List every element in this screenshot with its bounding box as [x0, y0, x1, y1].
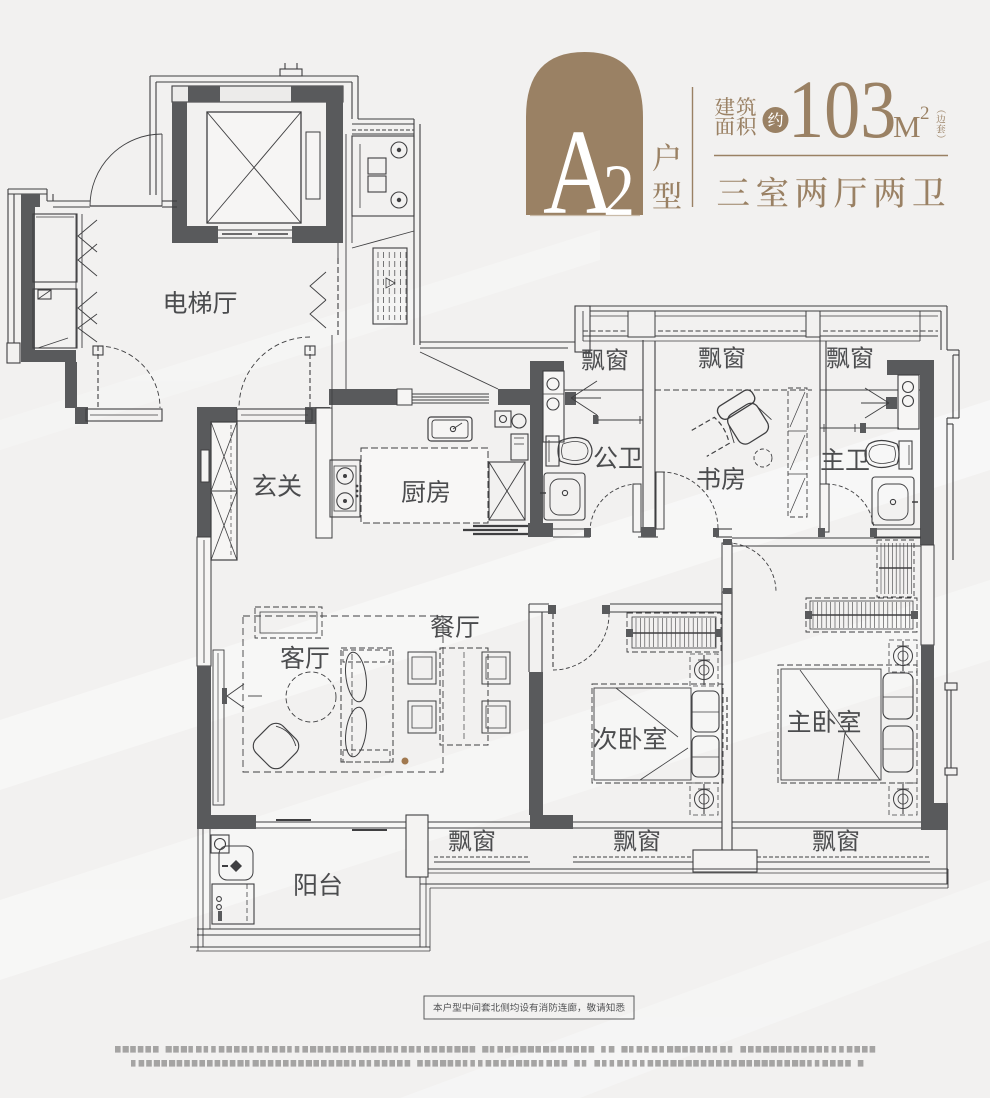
svg-text:2: 2: [603, 150, 635, 231]
svg-text:2: 2: [920, 103, 930, 124]
svg-text:103: 103: [788, 63, 896, 155]
svg-text:M: M: [893, 109, 921, 144]
